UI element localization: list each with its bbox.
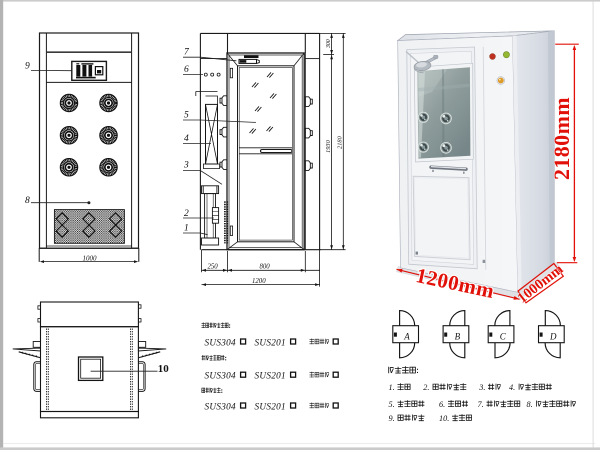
svg-text:9: 9 — [25, 62, 30, 72]
svg-text:7.: 7. — [478, 400, 484, 409]
svg-text:4.: 4. — [509, 383, 515, 392]
svg-text:3: 3 — [183, 161, 189, 171]
svg-text:8.: 8. — [527, 400, 533, 409]
svg-text:4: 4 — [184, 134, 189, 144]
svg-text:10.: 10. — [439, 414, 449, 423]
svg-text:C: C — [500, 331, 507, 341]
svg-text:1930: 1930 — [325, 139, 332, 153]
svg-text:2: 2 — [184, 209, 189, 219]
svg-text:8: 8 — [25, 196, 30, 206]
svg-text:D: D — [549, 331, 557, 341]
svg-text:SUS201: SUS201 — [255, 371, 286, 381]
svg-text:SUS201: SUS201 — [255, 337, 286, 347]
svg-text:B: B — [455, 331, 461, 341]
svg-text:2180mm: 2180mm — [549, 97, 574, 180]
svg-text:SUS304: SUS304 — [205, 401, 237, 411]
svg-text:10: 10 — [158, 363, 170, 375]
svg-text:6.: 6. — [439, 400, 445, 409]
svg-text:2180: 2180 — [337, 135, 344, 149]
svg-text:1: 1 — [184, 224, 189, 234]
svg-text:6: 6 — [184, 65, 189, 75]
svg-text:SUS304: SUS304 — [205, 371, 237, 381]
svg-text:300: 300 — [326, 39, 332, 49]
svg-text:800: 800 — [260, 264, 271, 271]
svg-text:5: 5 — [184, 111, 189, 121]
svg-text:5.: 5. — [389, 400, 395, 409]
svg-text:SUS304: SUS304 — [205, 337, 237, 347]
svg-text:2.: 2. — [423, 383, 429, 392]
svg-text:9.: 9. — [389, 414, 395, 423]
svg-text:A: A — [403, 331, 410, 341]
svg-text:SUS201: SUS201 — [255, 401, 286, 411]
svg-text:3.: 3. — [478, 383, 485, 392]
svg-text:1.: 1. — [389, 383, 395, 392]
svg-text:1000: 1000 — [83, 254, 98, 262]
svg-text:250: 250 — [208, 264, 219, 271]
svg-text:1200: 1200 — [252, 278, 266, 285]
